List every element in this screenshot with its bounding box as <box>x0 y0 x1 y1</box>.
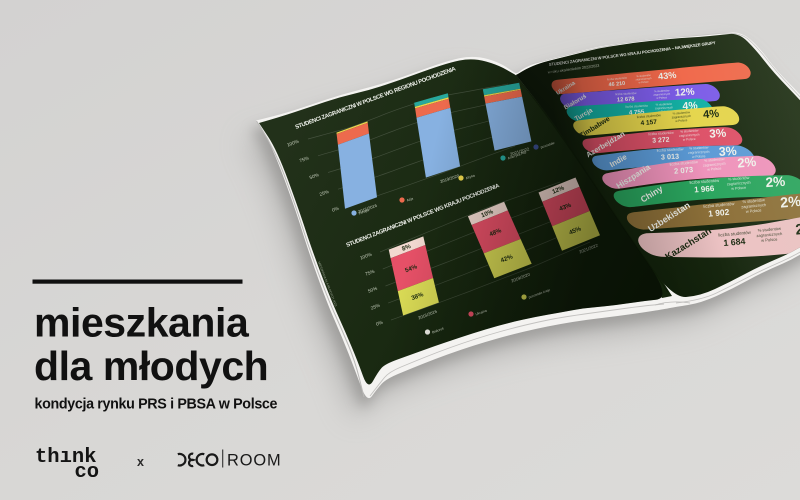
svg-text:co: co <box>75 461 100 484</box>
svg-text:mieszkania: mieszkania <box>34 300 250 346</box>
svg-text:ROOM: ROOM <box>227 451 282 469</box>
svg-text:kondycja rynku PRS i PBSA w Po: kondycja rynku PRS i PBSA w Polsce <box>35 397 278 413</box>
svg-text:x: x <box>137 455 144 469</box>
svg-text:dla młodych: dla młodych <box>34 343 268 389</box>
